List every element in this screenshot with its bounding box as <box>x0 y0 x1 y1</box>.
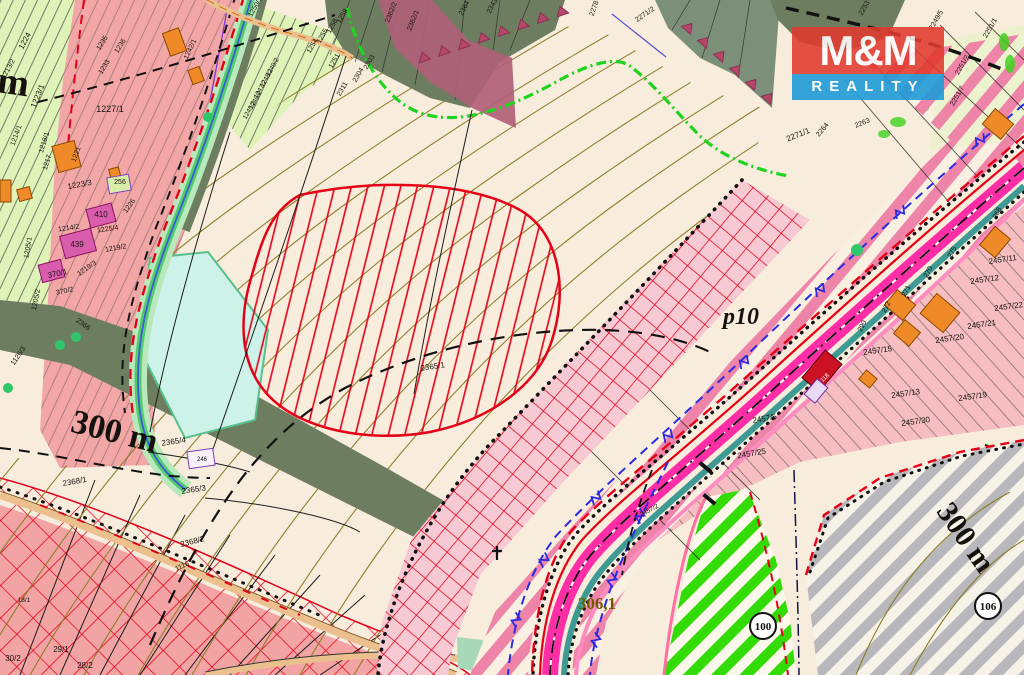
map-label: 18/1 <box>18 597 31 604</box>
realty-logo-mm: M&M <box>792 27 944 74</box>
map-label: 1227/1 <box>96 104 124 114</box>
map-label: 29/1 <box>53 645 69 654</box>
circled-route-number: 106 <box>980 601 997 613</box>
realty-logo-reality: REALITY <box>792 74 944 100</box>
map-label: 410 <box>94 210 108 219</box>
map-label: 246 <box>197 457 208 463</box>
building <box>0 180 11 202</box>
map-label: 28/2 <box>77 661 93 670</box>
cadastral-map: 300 m300 mmp10306,112241213/21223/11227/… <box>0 0 1024 675</box>
map-label: 439 <box>70 240 84 249</box>
map-label: p10 <box>721 304 759 330</box>
map-label: 306,1 <box>578 594 616 613</box>
realty-logo: M&M REALITY <box>792 27 944 100</box>
map-label: 30/2 <box>5 654 21 663</box>
map-label: 256 <box>114 179 126 186</box>
circled-route-number: 100 <box>755 621 772 633</box>
map-canvas[interactable]: 300 m300 mmp10306,112241213/21223/11227/… <box>0 0 1024 675</box>
building <box>17 187 33 202</box>
